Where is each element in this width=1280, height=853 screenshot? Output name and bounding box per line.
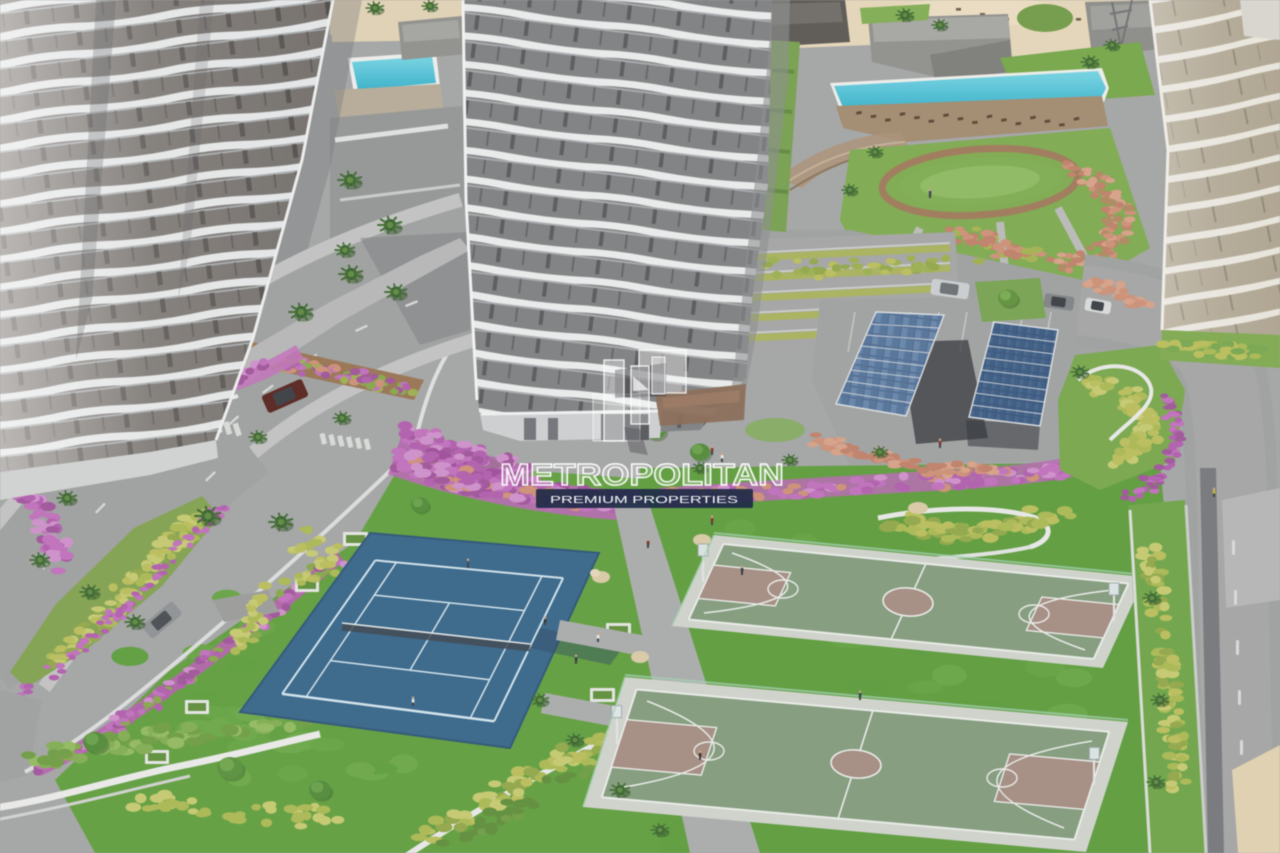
- svg-text:METROPOLITAN: METROPOLITAN: [500, 457, 784, 492]
- svg-text:PREMIUM PROPERTIES: PREMIUM PROPERTIES: [550, 494, 738, 506]
